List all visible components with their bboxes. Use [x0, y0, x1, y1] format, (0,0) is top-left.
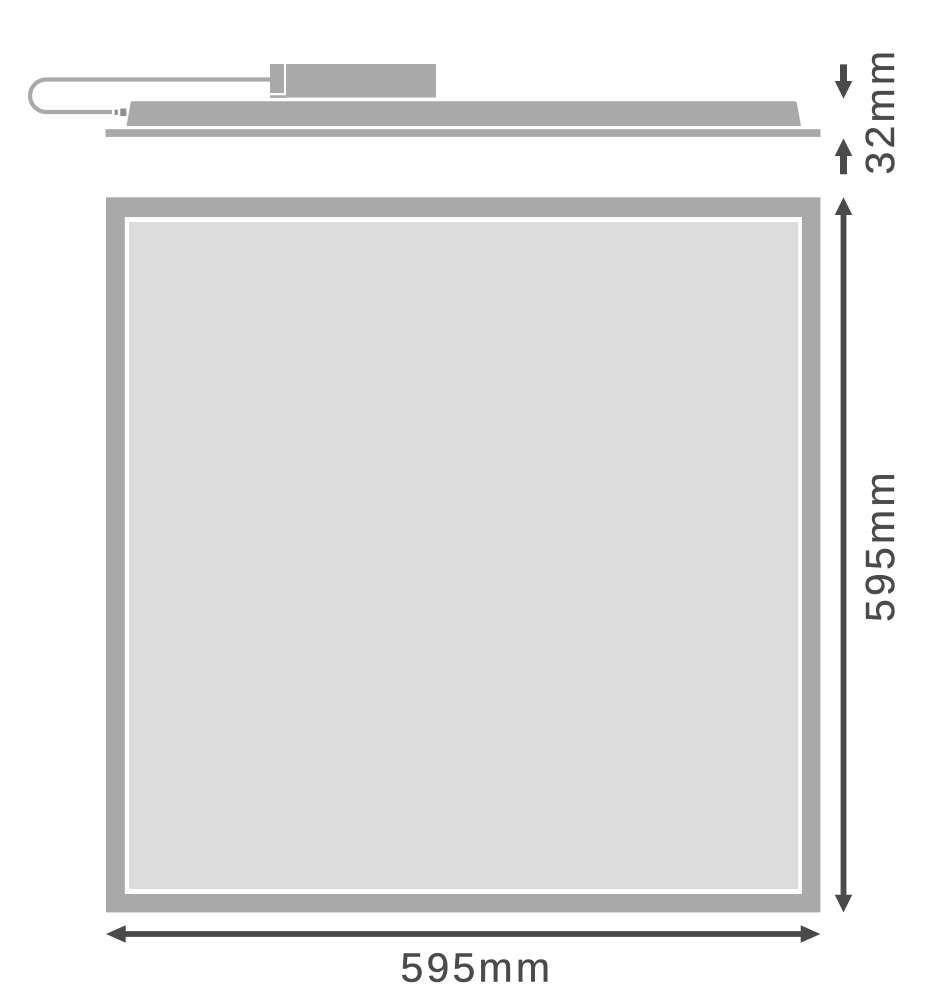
svg-text:595mm: 595mm: [857, 469, 903, 622]
svg-text:32mm: 32mm: [857, 48, 903, 175]
svg-text:595mm: 595mm: [401, 945, 554, 991]
